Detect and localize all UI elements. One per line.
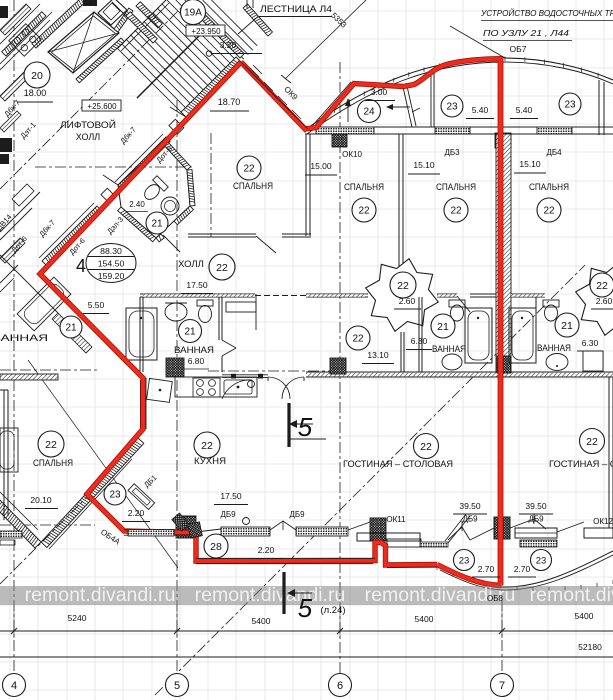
svg-text:СПАЛЬНЯ: СПАЛЬНЯ: [233, 181, 273, 191]
svg-text:2.70: 2.70: [478, 564, 495, 574]
svg-text:20: 20: [31, 70, 43, 82]
svg-text:23: 23: [564, 100, 576, 111]
svg-text:21: 21: [65, 323, 77, 334]
svg-text:159.20: 159.20: [98, 271, 125, 281]
svg-text:ДБ9: ДБ9: [289, 510, 305, 519]
svg-text:ГОСТИНАЯ – СТОЛОВАЯ: ГОСТИНАЯ – СТОЛОВАЯ: [343, 459, 453, 469]
svg-text:24: 24: [363, 107, 375, 118]
svg-text:СПАЛЬНЯ: СПАЛЬНЯ: [529, 182, 569, 192]
svg-text:СПАЛЬНЯ: СПАЛЬНЯ: [436, 182, 476, 192]
svg-text:5.40: 5.40: [516, 105, 533, 115]
svg-text:13.10: 13.10: [367, 350, 389, 360]
svg-text:23: 23: [459, 555, 470, 566]
svg-text:4: 4: [76, 256, 86, 276]
svg-text:5.40: 5.40: [472, 105, 489, 115]
svg-text:3.20: 3.20: [220, 40, 237, 50]
svg-text:ВАННАЯ: ВАННАЯ: [432, 344, 466, 355]
svg-text:28: 28: [210, 541, 222, 553]
svg-text:17.50: 17.50: [220, 491, 242, 501]
svg-text:39.50: 39.50: [525, 501, 547, 511]
svg-text:ЛИФТОВОЙ: ЛИФТОВОЙ: [60, 119, 116, 130]
svg-text:+23.950: +23.950: [191, 27, 221, 36]
svg-text:УСТРОЙСТВО ВОДОСТОЧНЫХ ТР: УСТРОЙСТВО ВОДОСТОЧНЫХ ТР: [480, 7, 613, 18]
svg-text:6.30: 6.30: [411, 336, 428, 346]
svg-text:ОК12: ОК12: [593, 517, 613, 526]
svg-text:22: 22: [543, 206, 555, 217]
svg-text:22: 22: [352, 334, 364, 345]
svg-text:15.10: 15.10: [519, 159, 541, 169]
svg-text:22: 22: [243, 164, 255, 175]
svg-text:ОБ7: ОБ7: [510, 44, 527, 54]
svg-text:ОК11: ОК11: [386, 515, 406, 524]
svg-text:6: 6: [337, 680, 343, 692]
svg-text:23: 23: [536, 555, 547, 566]
svg-text:ХОЛЛ: ХОЛЛ: [76, 132, 101, 142]
svg-text:22: 22: [216, 262, 228, 274]
svg-text:КУХНЯ: КУХНЯ: [194, 456, 226, 467]
svg-text:21: 21: [437, 321, 449, 333]
svg-text:23: 23: [446, 102, 458, 113]
svg-text:20.10: 20.10: [30, 495, 52, 505]
svg-text:22: 22: [450, 206, 462, 217]
svg-text:2.70: 2.70: [514, 564, 531, 574]
svg-text:6.80: 6.80: [188, 356, 205, 366]
svg-text:22: 22: [596, 280, 608, 292]
svg-text:ВАННАЯ: ВАННАЯ: [174, 345, 214, 356]
svg-text:7: 7: [499, 680, 505, 692]
svg-text:ГОСТИНАЯ – СТОЛОВАЯ: ГОСТИНАЯ – СТОЛОВАЯ: [549, 459, 613, 469]
svg-text:88.30: 88.30: [100, 246, 122, 256]
svg-text:ОК10: ОК10: [342, 150, 362, 159]
svg-text:5.50: 5.50: [88, 300, 105, 310]
svg-text:ДБ3: ДБ3: [444, 148, 460, 157]
svg-text:5400: 5400: [252, 616, 271, 626]
svg-text:ПО УЗЛУ 21 , Л44: ПО УЗЛУ 21 , Л44: [483, 29, 570, 38]
svg-text:23: 23: [109, 490, 121, 501]
svg-text:ОБ8: ОБ8: [487, 594, 503, 603]
svg-text:5400: 5400: [575, 611, 594, 621]
svg-text:22: 22: [586, 436, 598, 448]
svg-text:5240: 5240: [68, 613, 87, 623]
svg-text:5400: 5400: [415, 614, 434, 624]
svg-text:4: 4: [11, 680, 17, 692]
svg-text:19А: 19А: [184, 8, 202, 19]
svg-text:17.50: 17.50: [186, 280, 208, 290]
svg-text:СПАЛЬНЯ: СПАЛЬНЯ: [344, 182, 384, 192]
svg-text:remont.divandi.ru: remont.divandi.ru: [195, 584, 346, 606]
svg-text:15.00: 15.00: [310, 161, 332, 171]
svg-text:21: 21: [561, 320, 573, 332]
svg-text:18.70: 18.70: [218, 97, 241, 107]
svg-text:2.60: 2.60: [596, 296, 613, 306]
svg-text:remont.divandi.ru: remont.divandi.ru: [530, 584, 613, 606]
svg-text:2.20: 2.20: [128, 508, 145, 518]
svg-text:remont.divandi.ru: remont.divandi.ru: [25, 584, 176, 606]
svg-text:СПАЛЬНЯ: СПАЛЬНЯ: [33, 458, 73, 468]
svg-text:ДБ9: ДБ9: [462, 515, 478, 524]
svg-text:2.20: 2.20: [258, 545, 275, 555]
svg-text:52180: 52180: [578, 642, 602, 652]
svg-text:5: 5: [174, 680, 180, 692]
svg-text:18.00: 18.00: [24, 88, 47, 98]
svg-text:15.10: 15.10: [413, 160, 435, 170]
svg-text:(л.24): (л.24): [320, 605, 345, 616]
svg-text:2.40: 2.40: [129, 200, 145, 209]
svg-text:22: 22: [420, 441, 432, 453]
svg-text:6.30: 6.30: [582, 338, 599, 348]
svg-text:3.00: 3.00: [371, 87, 388, 97]
svg-text:5: 5: [298, 593, 313, 623]
svg-text:ВАННАЯ: ВАННАЯ: [0, 333, 48, 343]
svg-text:39.50: 39.50: [459, 501, 481, 511]
svg-text:22: 22: [45, 439, 57, 451]
svg-text:154.50: 154.50: [98, 259, 125, 269]
svg-text:2.60: 2.60: [399, 296, 416, 306]
svg-text:ХОЛЛ: ХОЛЛ: [178, 259, 204, 270]
svg-text:ВАННАЯ: ВАННАЯ: [537, 343, 571, 354]
svg-text:21: 21: [151, 219, 163, 230]
svg-text:22: 22: [397, 280, 409, 292]
svg-text:ДБ9: ДБ9: [220, 510, 236, 519]
svg-text:+25.600: +25.600: [87, 102, 117, 111]
svg-text:5: 5: [298, 412, 313, 442]
svg-text:22: 22: [358, 206, 370, 217]
svg-text:22: 22: [201, 440, 213, 452]
svg-text:ДБ4: ДБ4: [546, 148, 562, 157]
svg-text:ЛЕСТНИЦА Л4: ЛЕСТНИЦА Л4: [260, 4, 332, 15]
svg-text:ДБ9: ДБ9: [528, 515, 544, 524]
svg-text:21: 21: [184, 327, 196, 338]
